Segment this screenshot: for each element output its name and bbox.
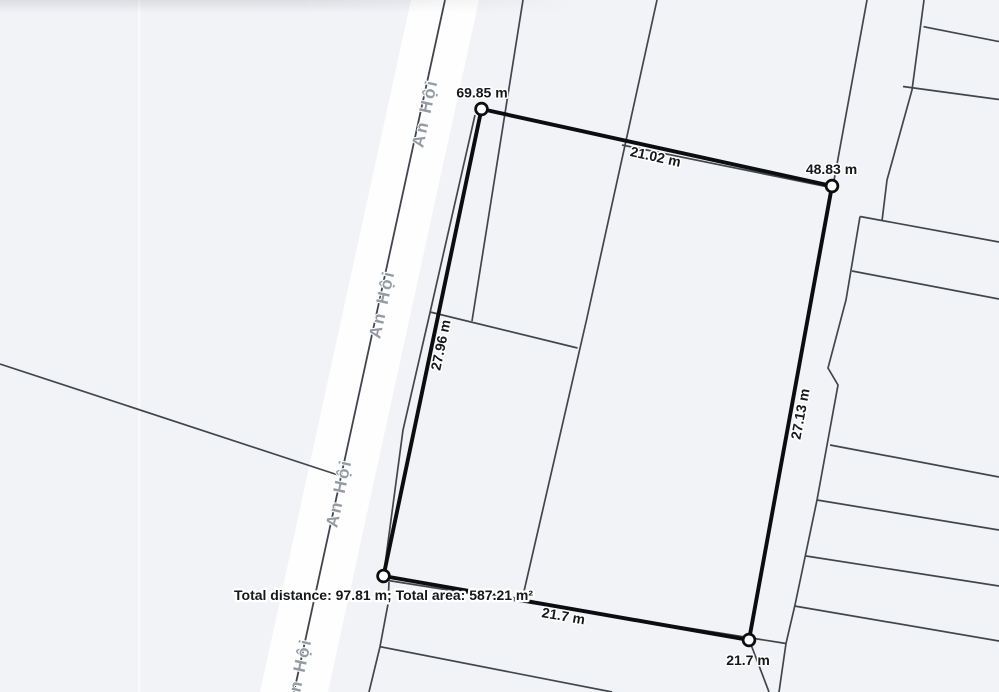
svg-text:48.83 m: 48.83 m xyxy=(806,161,857,177)
svg-text:69.85 m: 69.85 m xyxy=(456,85,507,101)
svg-text:Total distance: 97.81 m; Total: Total distance: 97.81 m; Total area: 587… xyxy=(234,587,533,603)
svg-text:21.7 m: 21.7 m xyxy=(726,652,770,668)
